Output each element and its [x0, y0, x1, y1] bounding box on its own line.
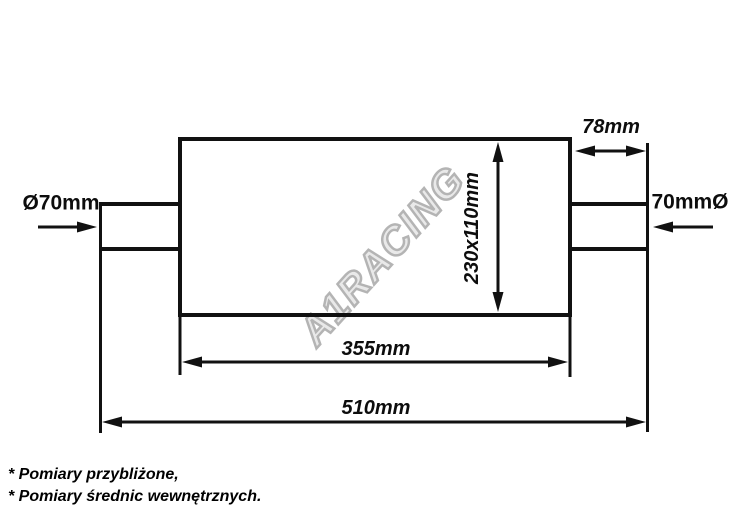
body-rect [180, 139, 570, 315]
dim-body-length-label: 355mm [342, 339, 411, 359]
dim-total-length-label: 510mm [342, 398, 411, 418]
muffler-dimension-diagram: A1RACING [0, 0, 750, 519]
dim-outlet-diameter-label: 70mmØ [651, 192, 728, 213]
outlet-arrow-right [653, 222, 713, 233]
dim-body-section-label: 230x110mm [462, 172, 482, 284]
footnote-line-1: * Pomiary przybliżone, [8, 464, 261, 486]
inlet-arrow-left [38, 222, 97, 233]
muffler-body-outline [180, 139, 570, 315]
dim-78mm-arrows [575, 146, 646, 157]
dim-inlet-diameter-label: Ø70mm [22, 193, 99, 214]
footnotes: * Pomiary przybliżone, * Pomiary średnic… [8, 464, 261, 508]
muffler-line-drawing [0, 0, 750, 519]
footnote-line-2: * Pomiary średnic wewnętrznych. [8, 486, 261, 508]
dim-stub-length-label: 78mm [582, 117, 640, 137]
inlet-pipe-left [99, 202, 182, 433]
outlet-pipe-right [570, 143, 649, 432]
dim-body-section-arrows [493, 142, 504, 312]
